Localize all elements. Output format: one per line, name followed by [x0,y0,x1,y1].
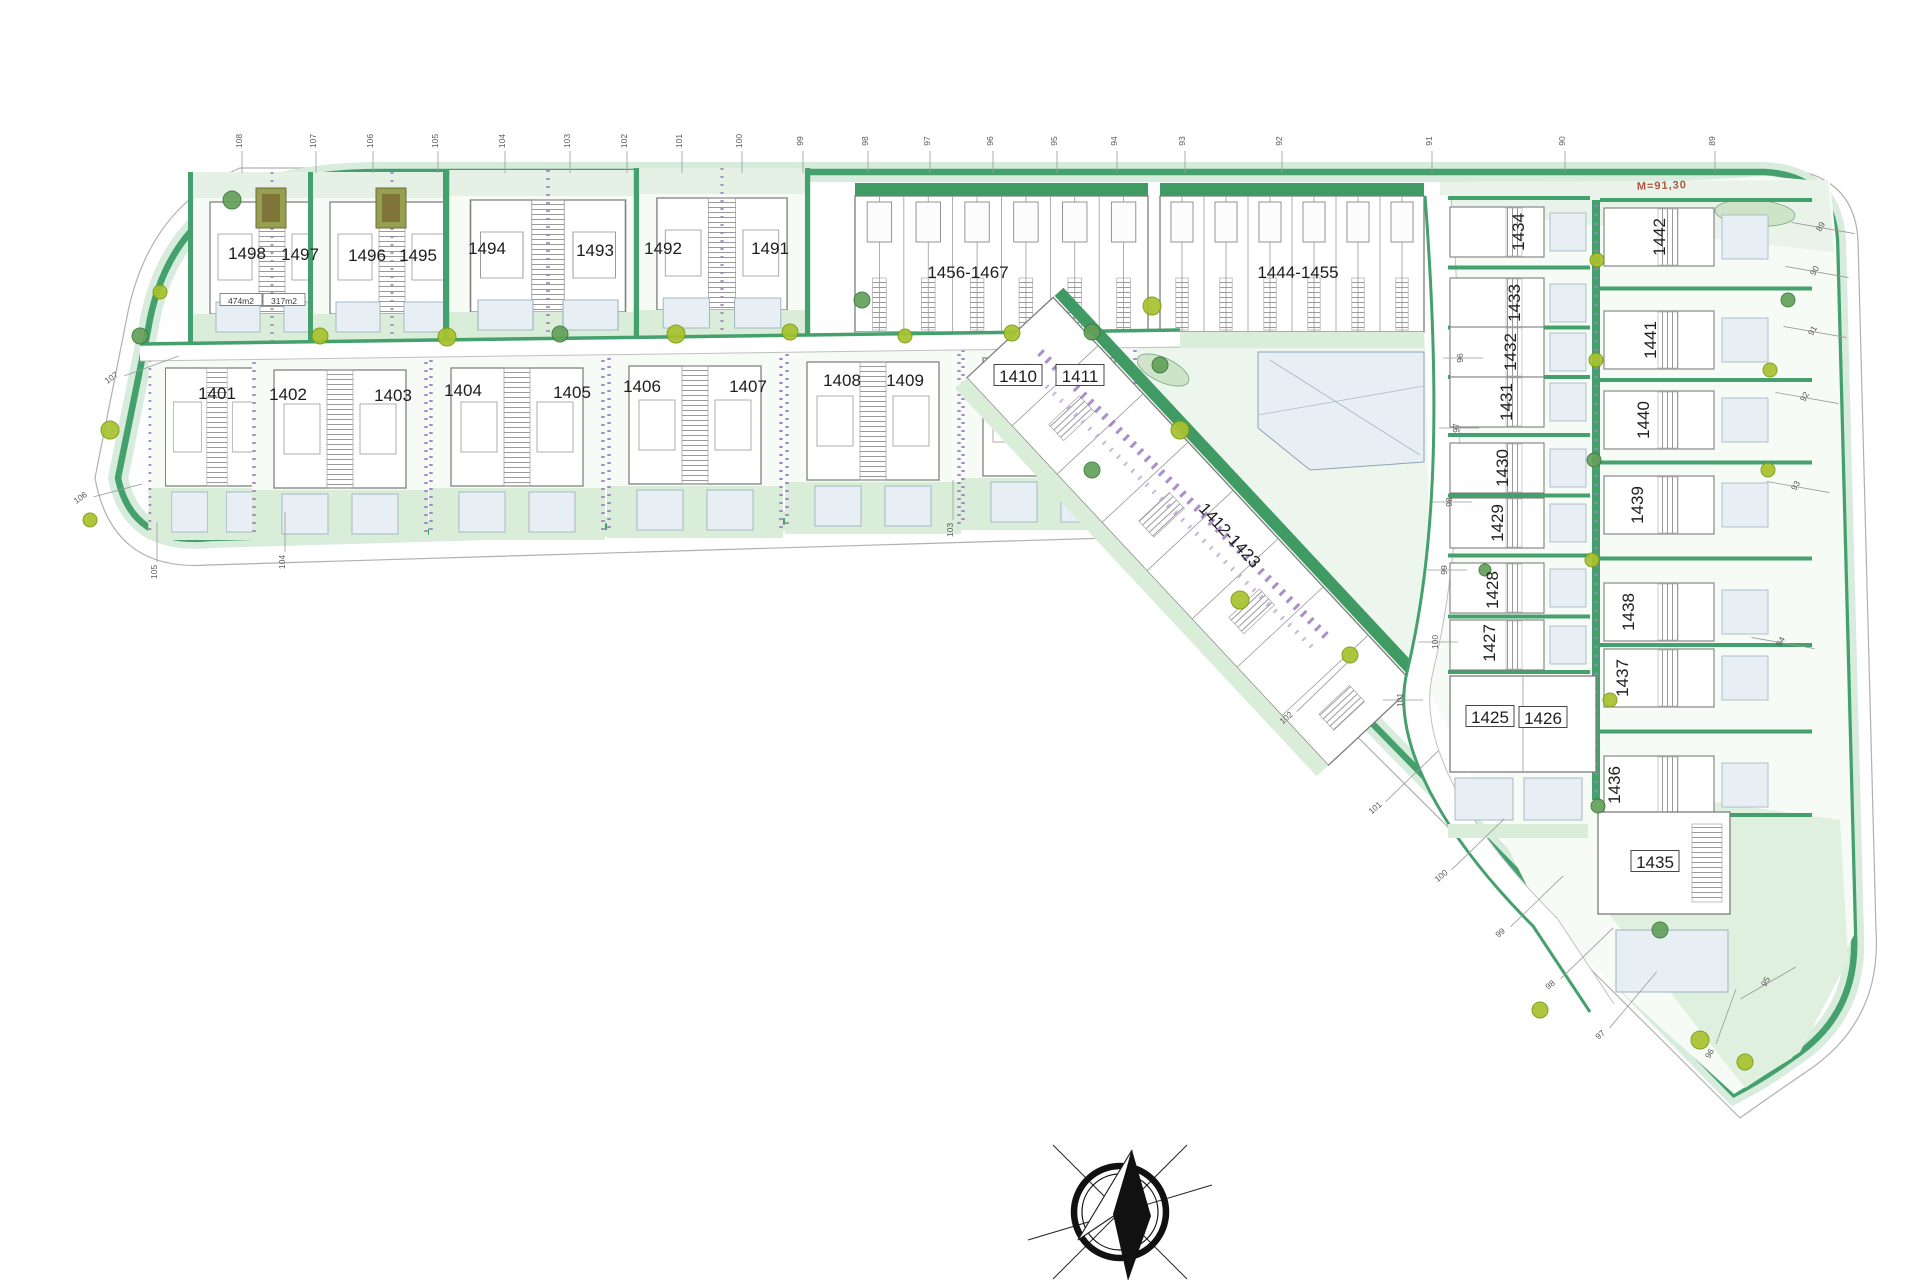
plot-label: 1441 [1641,321,1660,359]
plot-label: 1497 [281,245,319,264]
station-label: 98 [860,136,870,146]
station-label: 107 [103,369,121,385]
station-label: 108 [234,134,244,148]
station-label: 92 [1274,136,1284,146]
station-label: 95 [1049,136,1059,146]
plot-label: 1410 [999,367,1037,386]
station-label: 99 [1439,565,1449,575]
plot-label: 1428 [1483,571,1502,609]
station-label: 100 [1432,867,1450,884]
plot-label: 1409 [886,371,924,390]
plot-label: 1403 [374,386,412,405]
site-plan-canvas: 149814971496149514941493149214911456-146… [0,0,1920,1280]
plot-label: 1435 [1636,853,1674,872]
station-label: 100 [1430,635,1440,649]
site-plan-drawing: 149814971496149514941493149214911456-146… [0,0,1920,1280]
plot-label: 1427 [1480,624,1499,662]
plot-label: 1405 [553,383,591,402]
plot-label: 1494 [468,239,506,258]
station-label: 89 [1707,136,1717,146]
station-label: 100 [734,134,744,148]
station-label: 107 [308,134,318,148]
plot-label: 1444-1455 [1257,263,1338,282]
plot-label: 1401 [198,384,236,403]
plot-label: 1433 [1505,284,1524,322]
station-label: 96 [985,136,995,146]
plot-label: 1442 [1650,218,1669,256]
station-label: 101 [1395,693,1405,707]
plot-label: 1430 [1493,449,1512,487]
plot-label: 1437 [1613,659,1632,697]
station-label: 93 [1177,136,1187,146]
plot-label: 1498 [228,244,266,263]
plot-1435 [1598,812,1730,992]
station-label: 105 [149,565,159,579]
plot-label: 1402 [269,385,307,404]
plot-label: 1436 [1605,766,1624,804]
station-label: 96 [1455,353,1465,363]
station-label: 98 [1444,497,1454,507]
station-label: 104 [277,555,287,569]
station-label: 103 [562,134,572,148]
station-label: 94 [1109,136,1119,146]
plot-label: 1408 [823,371,861,390]
plot-label: 1495 [399,246,437,265]
station-label: 91 [1424,136,1434,146]
plot-label: 1492 [644,239,682,258]
area-label: 474m2 [228,296,254,306]
area-label: 317m2 [271,296,297,306]
station-label: 101 [674,134,684,148]
plot-label: 1432 [1501,333,1520,371]
station-label: 90 [1557,136,1567,146]
station-label: 97 [1593,1028,1607,1042]
plot-label: 1434 [1509,213,1528,251]
plot-label: 1411 [1062,367,1099,386]
station-label: 103 [945,523,955,537]
plot-label: 1426 [1524,709,1562,728]
plot-label: 1456-1467 [927,263,1008,282]
plot-label: 1491 [751,239,789,258]
plot-label: 1431 [1497,383,1516,421]
plot-label: 1425 [1471,708,1509,727]
station-label: 105 [430,134,440,148]
station-label: 98 [1543,978,1557,992]
station-label: 106 [365,134,375,148]
plot-label: 1440 [1634,401,1653,439]
plot-label: 1493 [576,241,614,260]
station-label: 99 [795,136,805,146]
plot-label: 1407 [729,377,767,396]
plot-label: 1439 [1628,486,1647,524]
station-label: 101 [1366,799,1384,816]
station-label: 97 [1451,423,1461,433]
station-label: 106 [72,489,90,505]
station-label: 104 [497,134,507,148]
plot-label: 1406 [623,377,661,396]
plot-label: 1496 [348,246,386,265]
plot-label: 1438 [1619,593,1638,631]
plot-label: 1429 [1488,504,1507,542]
station-label: 99 [1493,926,1507,940]
station-label: 97 [922,136,932,146]
plot-label: 1404 [444,381,482,400]
level-note-label: M=91,30 [1637,179,1688,193]
north-compass-icon [1028,1145,1212,1280]
station-label: 102 [619,134,629,148]
